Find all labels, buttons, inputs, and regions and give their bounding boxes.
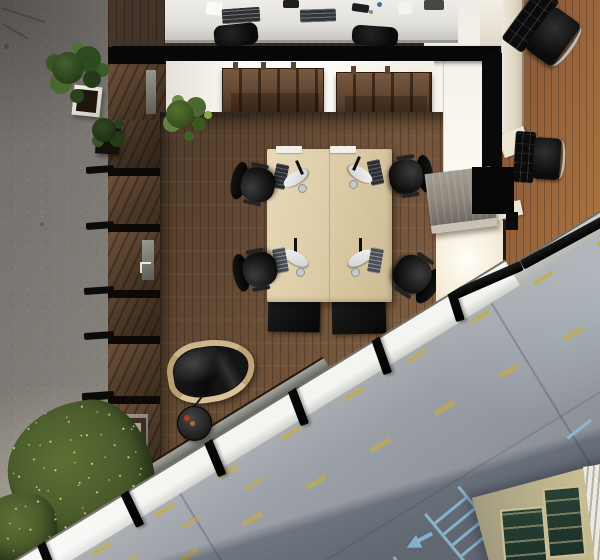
window-glass: [142, 240, 154, 280]
table-seam: [329, 150, 330, 301]
fruit: [190, 421, 195, 426]
terrace-speck: [4, 44, 9, 49]
chair-mat: [268, 300, 321, 333]
chair-mat: [332, 300, 387, 335]
office-chair: [230, 245, 285, 295]
shelf-lower-row: [231, 93, 319, 113]
partition-wall-black: [112, 46, 501, 61]
monitor-base: [351, 268, 360, 277]
wall-shelf-unit: [222, 68, 324, 114]
plant-foliage: [92, 118, 116, 142]
monitor-base: [298, 184, 307, 193]
monitor-top: [424, 0, 444, 10]
blue-object: [377, 2, 382, 7]
paper-tray: [330, 146, 356, 153]
keyboard: [300, 8, 336, 22]
structural-column-black: [472, 167, 514, 214]
planter: [72, 85, 103, 118]
window-glass: [146, 70, 156, 114]
rooftop-window: [500, 506, 549, 560]
shelf-fin: [233, 62, 238, 70]
wall-stub-black: [506, 212, 518, 230]
upper-office-chair: [213, 22, 259, 48]
black-dividing-wall: [482, 53, 502, 179]
laptop: [222, 7, 261, 25]
paper-sheet: [397, 1, 412, 14]
keyboard: [367, 247, 384, 274]
shelf-fin: [291, 62, 296, 70]
wall-shelf-unit: [336, 72, 432, 116]
terrace-speck: [40, 222, 44, 226]
upper-office-chair: [351, 24, 398, 47]
paper-tray: [276, 146, 302, 153]
mug: [369, 10, 373, 14]
workstation: [342, 156, 382, 196]
indoor-plant: [166, 100, 194, 128]
shelf-fin: [351, 66, 356, 74]
paper-sheet: [205, 1, 222, 16]
rooftop-window: [542, 485, 586, 558]
fruit: [184, 415, 190, 421]
white-corner-mark: [140, 262, 151, 273]
laptop-lid: [283, 0, 299, 8]
monitor-base: [296, 268, 305, 277]
plant-foliage: [52, 52, 84, 84]
monitor-base: [349, 180, 358, 189]
planter-soil: [76, 89, 98, 113]
shelf-fin: [261, 62, 266, 70]
leather-chair: [512, 131, 563, 185]
workstation: [342, 238, 382, 278]
render-canvas: [0, 0, 600, 560]
shelf-fin: [385, 66, 390, 74]
